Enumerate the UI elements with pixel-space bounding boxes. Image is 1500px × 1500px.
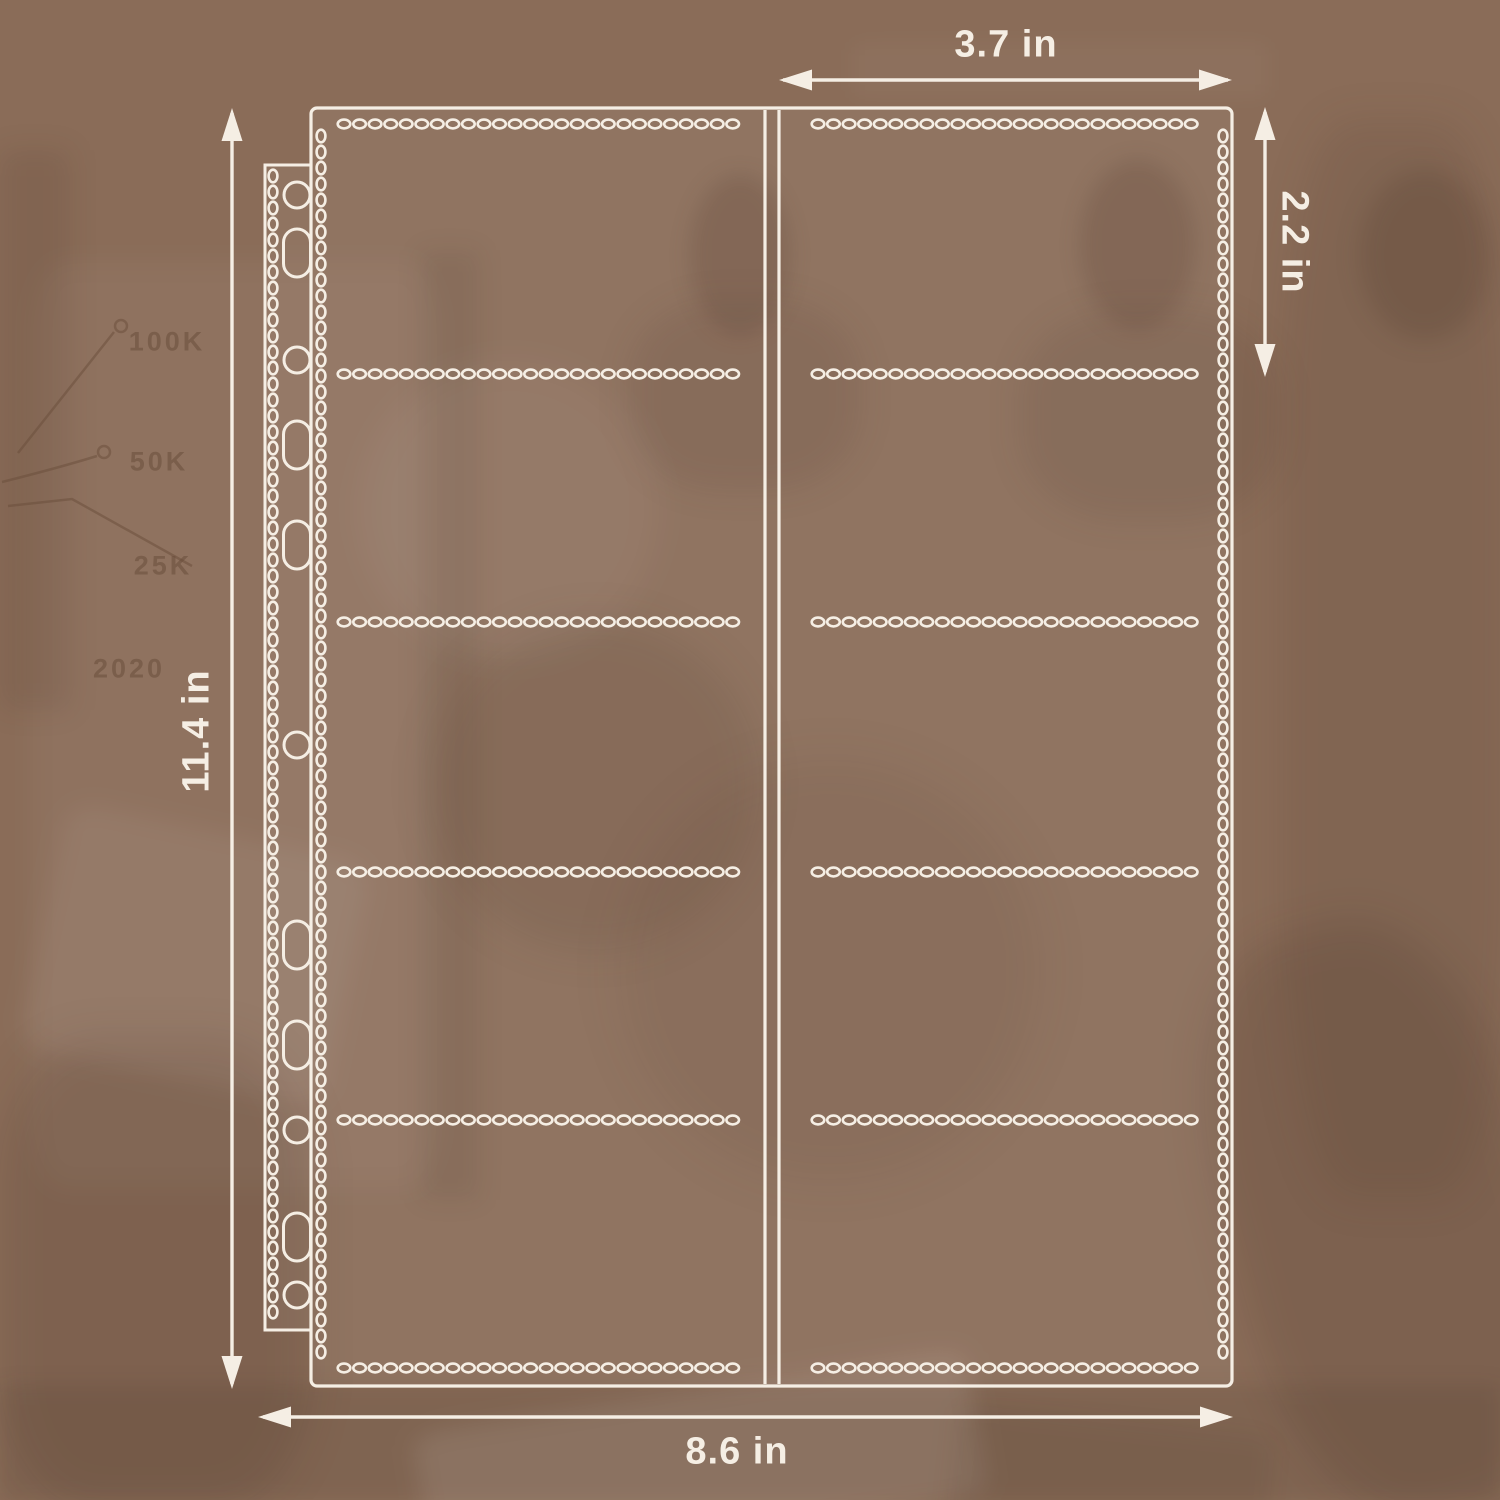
- dimension-label-bottom: 8.6 in: [685, 1431, 788, 1474]
- product-diagram-image: 100K 50K 25K 2020: [0, 0, 1500, 1500]
- dimension-label-top: 3.7 in: [954, 24, 1057, 67]
- dimension-label-right: 2.2 in: [1273, 190, 1316, 293]
- dimension-labels: 3.7 in 2.2 in 11.4 in 8.6 in: [0, 0, 1500, 1500]
- dimension-label-left: 11.4 in: [176, 669, 219, 792]
